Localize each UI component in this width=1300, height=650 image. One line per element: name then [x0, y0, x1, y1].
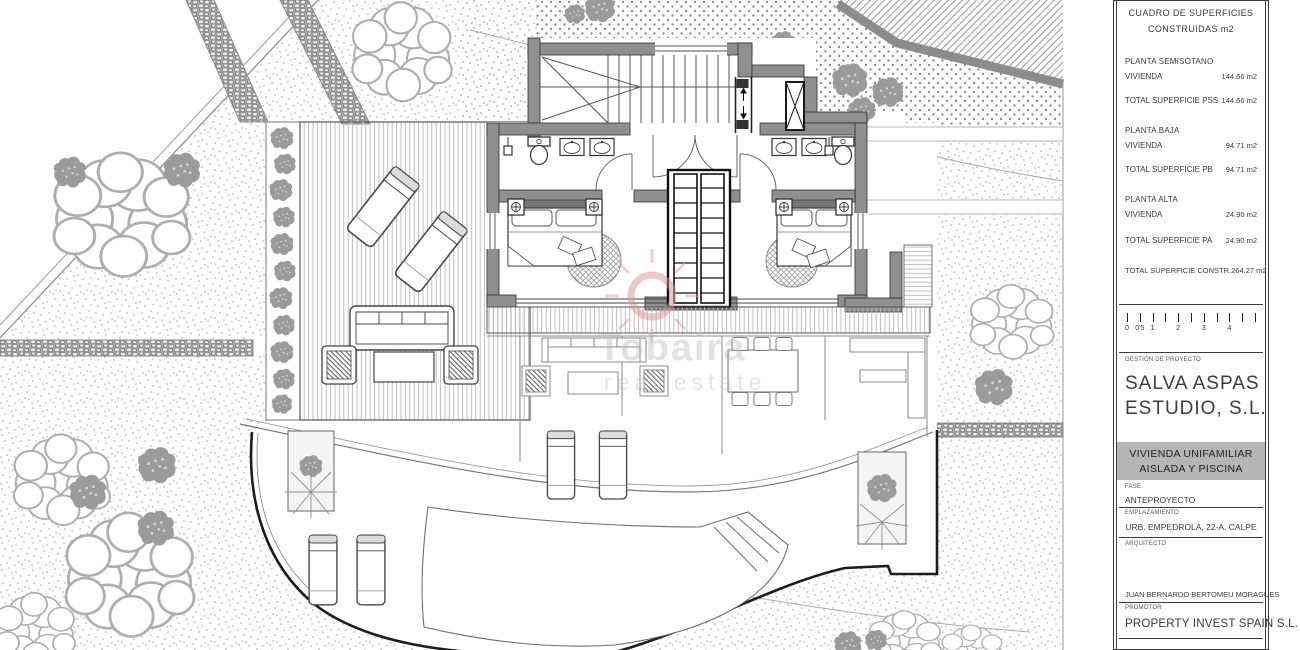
architectural-plan-sheet: Tobaira real estate CUADRO DE SUPERFICIE…: [0, 0, 1300, 650]
scale-label: 4: [1227, 325, 1231, 332]
sun-lounger-icon: [547, 431, 574, 499]
sink-icon: [590, 139, 614, 156]
toilet-icon: [832, 137, 854, 165]
armchair: [322, 346, 356, 384]
fase-value: ANTEPROYECTO: [1125, 495, 1257, 505]
nightstand: [508, 199, 524, 215]
arquitecto-value: JUAN BERNARDO BERTOMEU MORAGUES: [1125, 590, 1257, 599]
scale-label: 3: [1202, 325, 1206, 332]
studio-name-2: ESTUDIO, S.L.: [1125, 398, 1257, 420]
nightstand: [836, 199, 852, 215]
gestion-label: GESTIÓN DE PROYECTO: [1125, 357, 1257, 363]
surfaces-header: CUADRO DE SUPERFICIES: [1125, 8, 1257, 18]
surface-row: VIVIENDA 144.66 m2: [1125, 72, 1257, 81]
project-title-band: VIVIENDA UNIFAMILIAR AISLADA Y PISCINA: [1117, 442, 1265, 480]
sink-icon: [560, 139, 584, 156]
floor-plan-drawing: Tobaira real estate: [0, 0, 1113, 650]
nightstand: [586, 199, 602, 215]
outdoor-sofa: [350, 306, 454, 350]
surface-row: VIVIENDA 24.90 m2: [1125, 210, 1257, 219]
fase-label: FASE: [1125, 484, 1257, 490]
sun-lounger-icon: [309, 535, 337, 605]
divider: [1119, 602, 1263, 603]
arquitecto-label: ARQUITECTO: [1125, 541, 1257, 547]
surface-row: TOTAL SUPERFICIE PA 24.90 m2: [1125, 236, 1257, 245]
section-title: PLANTA ALTA: [1125, 195, 1257, 204]
emplazamiento-label: EMPLAZAMIENTO: [1125, 510, 1257, 516]
sink-icon: [802, 139, 826, 156]
section-title: PLANTA BAJA: [1125, 126, 1257, 135]
planter-right: [856, 452, 908, 550]
sun-lounger-icon: [357, 535, 385, 605]
total-surface-row: TOTAL SUPERFICIE CONSTR. 264.27 m2: [1125, 266, 1257, 275]
sink-icon: [772, 139, 796, 156]
scale-label: 0'5: [1135, 325, 1144, 332]
graphic-scale-bar: 0 0'5 1 2 3 4: [1127, 313, 1255, 343]
title-block-inner: CUADRO DE SUPERFICIES CONSTRUIDAS m2 PLA…: [1116, 1, 1266, 649]
scale-label: 0: [1125, 325, 1129, 332]
section-title: PLANTA SEMISÓTANO: [1125, 57, 1257, 66]
coffee-table: [374, 352, 434, 382]
title-block: CUADRO DE SUPERFICIES CONSTRUIDAS m2 PLA…: [1113, 0, 1269, 650]
toilet-icon: [528, 137, 550, 165]
surface-row: TOTAL SUPERFICIE PSS 144.66 m2: [1125, 96, 1257, 105]
studio-name: SALVA ASPAS: [1125, 373, 1257, 395]
watermark-brand: Tobaira: [598, 327, 746, 369]
ladder-shaft: [668, 170, 730, 307]
watermark-tagline: real estate: [604, 369, 766, 395]
nightstand: [776, 199, 792, 215]
elevator-shaft: [786, 82, 804, 130]
divider: [1119, 507, 1263, 508]
planter-left: [285, 431, 337, 518]
divider: [1119, 304, 1263, 305]
divider: [1119, 352, 1263, 353]
divider: [1119, 537, 1263, 538]
promotor-label: PROMOTOR: [1125, 605, 1257, 611]
scale-label: 1: [1151, 325, 1155, 332]
surfaces-header-2: CONSTRUIDAS m2: [1125, 24, 1257, 34]
side-deck: [904, 245, 932, 307]
promotor-value: PROPERTY INVEST SPAIN S.L.: [1125, 618, 1257, 630]
hedge-strip: [266, 122, 300, 420]
divider: [1119, 638, 1263, 639]
emplazamiento-value: URB. EMPEDROLA, 22-A, CALPE: [1125, 522, 1257, 532]
scale-label: 2: [1176, 325, 1180, 332]
surface-row: TOTAL SUPERFICIE PB 94.71 m2: [1125, 165, 1257, 174]
sun-lounger-icon: [599, 431, 626, 499]
armchair: [444, 346, 478, 384]
surface-row: VIVIENDA 94.71 m2: [1125, 141, 1257, 150]
